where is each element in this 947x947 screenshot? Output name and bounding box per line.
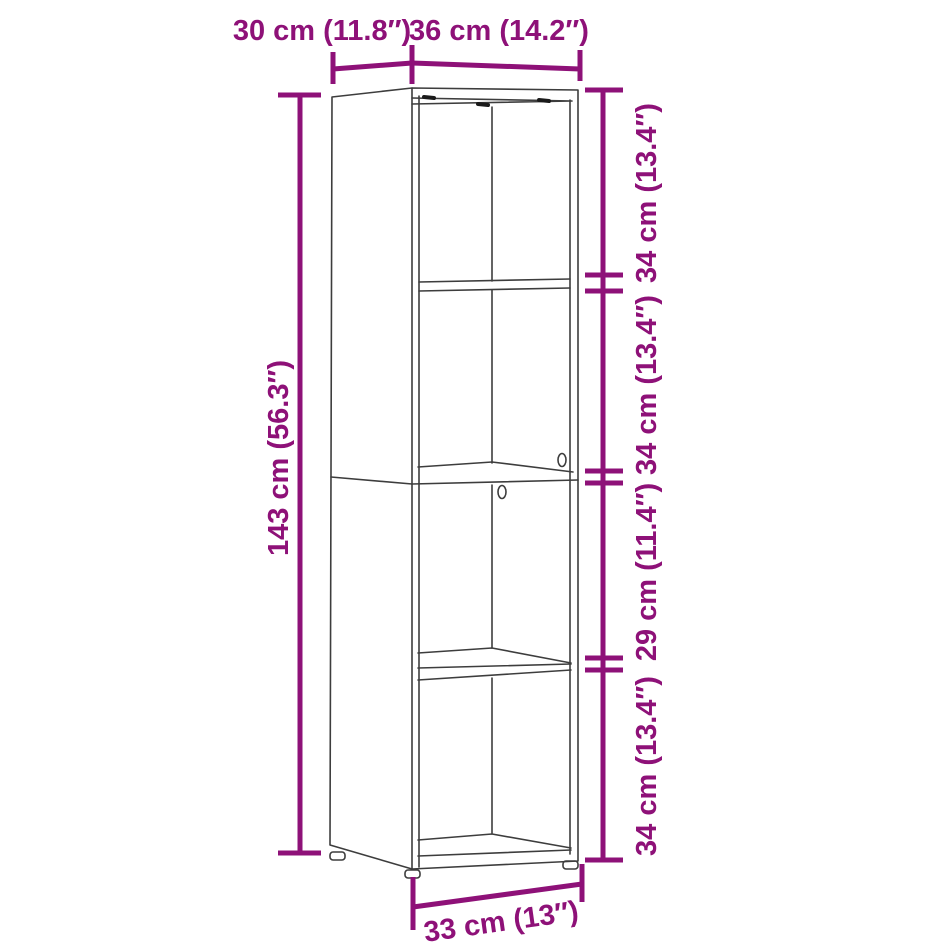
label-segment-3: 29 cm (11.4″): [631, 483, 663, 661]
label-width-top: 36 cm (14.2″): [409, 15, 589, 47]
shelf-line-middle: [331, 462, 578, 484]
cabinet-foot: [330, 852, 345, 860]
dim-line-depth: [333, 63, 412, 69]
shelf-line-upper: [419, 279, 570, 291]
dim-line-width: [412, 63, 580, 69]
product-dimension-diagram: 30 cm (11.8″) 36 cm (14.2″) 143 cm (56.3…: [0, 0, 947, 947]
label-segment-2: 34 cm (13.4″): [631, 295, 663, 475]
label-depth-top: 30 cm (11.8″): [233, 15, 411, 47]
cabinet-front-face: [412, 88, 578, 869]
label-segment-4: 34 cm (13.4″): [631, 676, 663, 856]
label-height-left: 143 cm (56.3″): [263, 360, 295, 556]
dimension-right: [585, 90, 623, 860]
cabinet-drawing: [330, 88, 578, 878]
shelf-line-lower: [418, 648, 571, 680]
bottom-panel: [418, 834, 571, 856]
diagram-canvas: 30 cm (11.8″) 36 cm (14.2″) 143 cm (56.3…: [0, 0, 947, 947]
peg-hole: [558, 454, 566, 467]
cabinet-foot: [405, 870, 420, 878]
dimension-top: [333, 45, 580, 84]
peg-hole: [498, 486, 506, 499]
label-segment-1: 34 cm (13.4″): [631, 103, 663, 283]
